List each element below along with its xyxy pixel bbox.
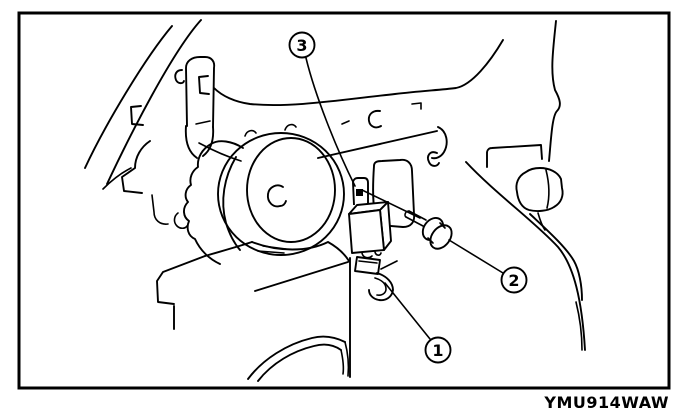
clip-hook-inner bbox=[375, 278, 386, 295]
line-art-canvas: 3 2 1 YMU914WAW bbox=[0, 0, 688, 414]
horn-inner-dome bbox=[247, 138, 335, 242]
horn-top-bump-1 bbox=[245, 131, 256, 136]
leader-line-2 bbox=[449, 240, 503, 273]
callout-1-number: 1 bbox=[432, 341, 443, 360]
cowl-lines bbox=[214, 40, 503, 166]
horn-assembly bbox=[174, 125, 349, 264]
unit-foot-2 bbox=[375, 252, 381, 255]
bracket-step-upper bbox=[122, 141, 150, 193]
arch-curve-inner bbox=[258, 345, 341, 381]
arch-curve-outer bbox=[248, 337, 345, 379]
callout-2-number: 2 bbox=[508, 271, 519, 290]
horn-base-left bbox=[205, 242, 252, 256]
horn-rim-arc bbox=[223, 157, 240, 250]
hook-clip bbox=[355, 257, 397, 300]
horn-center-mark bbox=[268, 185, 286, 206]
lower-diagonal-line bbox=[255, 262, 348, 291]
bracket-stroke bbox=[103, 168, 131, 189]
horn-top-bump-2 bbox=[285, 125, 296, 130]
callout-3-number: 3 bbox=[296, 36, 307, 55]
clip-hook-outer bbox=[369, 273, 393, 300]
callout-1: 1 bbox=[426, 338, 451, 363]
arch-end-tick-1 bbox=[345, 342, 348, 376]
cowl-tick-2 bbox=[342, 121, 349, 124]
cowl-tick-1 bbox=[412, 103, 421, 109]
leader-line-1 bbox=[385, 283, 430, 339]
right-bracket bbox=[487, 145, 542, 167]
bracket-lower-stroke bbox=[152, 195, 168, 224]
grommet-blob bbox=[516, 168, 562, 211]
lower-step-bracket bbox=[157, 256, 205, 304]
pillar-foot-left bbox=[186, 126, 197, 158]
callout-3: 3 bbox=[290, 33, 315, 58]
body-vertical-line bbox=[549, 21, 560, 161]
horn-outer-ring bbox=[218, 133, 344, 255]
pillar-foot-right bbox=[203, 127, 213, 156]
technical-figure: 3 2 1 YMU914WAW bbox=[0, 0, 688, 414]
arch-end-tick-2 bbox=[341, 350, 343, 374]
callout-2: 2 bbox=[502, 268, 527, 293]
right-body-structure bbox=[466, 21, 585, 350]
sheetmetal-cutout-small bbox=[175, 70, 184, 83]
figure-code: YMU914WAW bbox=[543, 393, 669, 412]
clip-head bbox=[355, 257, 380, 274]
cowl-top-curve bbox=[214, 40, 503, 105]
lower-body-structure bbox=[157, 256, 350, 381]
unit-front-face bbox=[349, 210, 384, 253]
pillar-cutout bbox=[199, 76, 209, 94]
clip-tick bbox=[381, 261, 397, 269]
fender-diagonal-line-1 bbox=[85, 26, 172, 168]
cowl-cutout-c bbox=[369, 111, 381, 128]
pillar-inner-mark bbox=[196, 121, 210, 124]
